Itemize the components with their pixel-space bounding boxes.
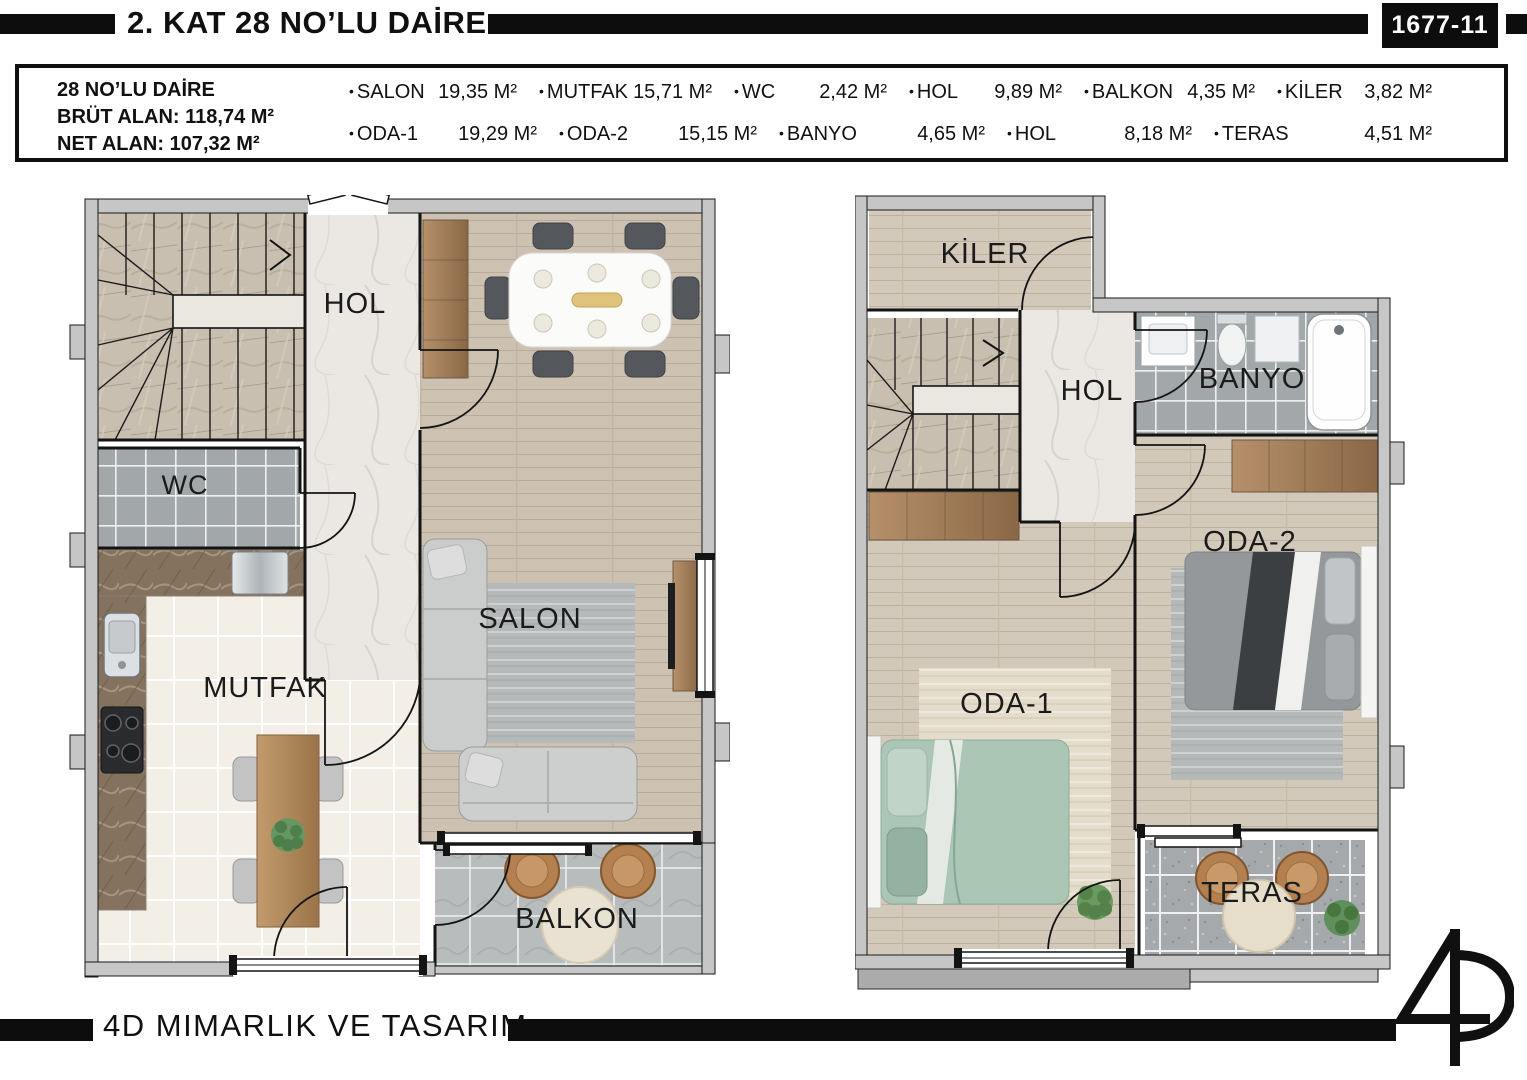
company-name: 4D MIMARLIK VE TASARIM bbox=[103, 1008, 528, 1044]
room-area-item: TERAS4,51 M² bbox=[1214, 123, 1454, 146]
room-area-item: BANYO4,65 M² bbox=[779, 123, 1007, 146]
room-area-item: WC2,42 M² bbox=[734, 81, 909, 104]
gross-area: BRÜT ALAN: 118,74 M² bbox=[57, 104, 274, 131]
lower-floor-plan-drawing bbox=[65, 195, 730, 995]
net-area: NET ALAN: 107,32 M² bbox=[57, 131, 274, 158]
page-title: 2. KAT 28 NO’LU DAİRE bbox=[127, 5, 487, 41]
floor-plan-sheet: 2. KAT 28 NO’LU DAİRE 1677-11 28 NO’LU D… bbox=[0, 0, 1527, 1080]
apartment-label: 28 NO’LU DAİRE bbox=[57, 77, 274, 104]
company-logo-4d-icon bbox=[1392, 925, 1514, 1070]
sheet-number: 1677-11 bbox=[1391, 11, 1488, 40]
room-area-item: MUTFAK15,71 M² bbox=[539, 81, 734, 104]
area-summary-box: 28 NO’LU DAİRE BRÜT ALAN: 118,74 M² NET … bbox=[15, 64, 1508, 162]
room-area-item: HOL9,89 M² bbox=[909, 81, 1084, 104]
header-rule-right bbox=[488, 14, 1368, 34]
sheet-number-badge: 1677-11 bbox=[1382, 3, 1498, 48]
room-area-item: SALON19,35 M² bbox=[349, 81, 539, 104]
room-area-item: KİLER3,82 M² bbox=[1277, 81, 1454, 104]
room-area-item: HOL8,18 M² bbox=[1007, 123, 1214, 146]
room-areas-row-2: ODA-119,29 M² ODA-215,15 M² BANYO4,65 M²… bbox=[349, 114, 1454, 154]
upper-floor-plan-drawing bbox=[855, 190, 1415, 1000]
room-area-item: ODA-119,29 M² bbox=[349, 123, 559, 146]
header-rule-edge bbox=[1506, 14, 1527, 34]
lower-landing-strip bbox=[858, 969, 1378, 989]
apartment-summary: 28 NO’LU DAİRE BRÜT ALAN: 118,74 M² NET … bbox=[57, 77, 274, 158]
header-rule-left bbox=[0, 14, 115, 34]
room-area-item: BALKON4,35 M² bbox=[1084, 81, 1277, 104]
footer-rule-left bbox=[0, 1019, 93, 1041]
room-area-item: ODA-215,15 M² bbox=[559, 123, 779, 146]
room-areas-row-1: SALON19,35 M² MUTFAK15,71 M² WC2,42 M² H… bbox=[349, 72, 1454, 112]
footer-rule-right bbox=[508, 1019, 1396, 1041]
